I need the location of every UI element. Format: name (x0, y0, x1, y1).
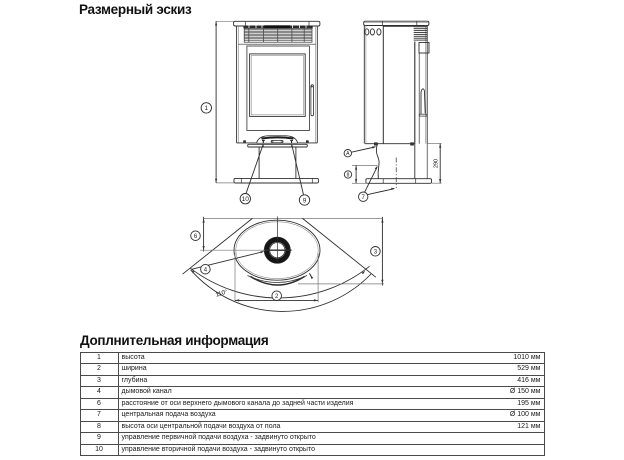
svg-text:290: 290 (434, 159, 440, 168)
svg-text:1: 1 (204, 105, 208, 112)
svg-text:9: 9 (303, 197, 307, 204)
svg-text:8: 8 (347, 172, 350, 178)
svg-text:10: 10 (242, 196, 250, 203)
svg-text:110°: 110° (215, 289, 229, 298)
